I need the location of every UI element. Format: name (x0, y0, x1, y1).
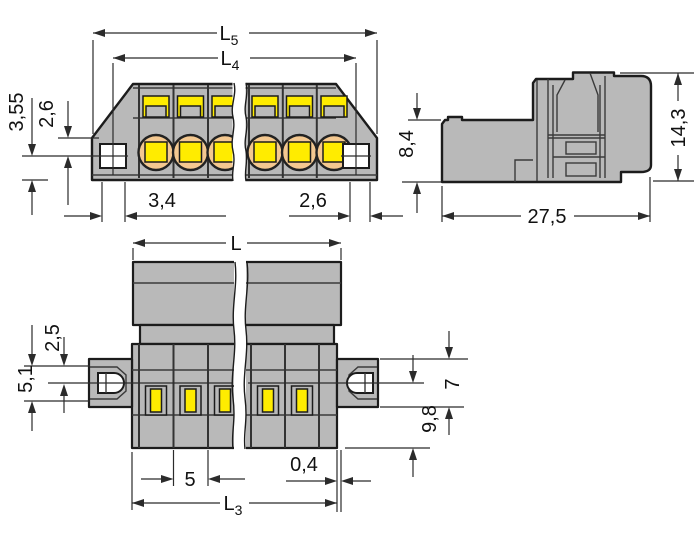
dim-label-3-55: 3,55 (6, 93, 28, 132)
technical-drawing-page: L5 L4 3,55 2,6 3,4 (0, 0, 697, 543)
dim-label-7: 7 (442, 378, 464, 389)
dim-label-14-3: 14,3 (668, 109, 690, 148)
dim-label-5: 5 (184, 469, 195, 491)
dim-label-9-8: 9,8 (419, 405, 441, 433)
dim-label-0-4: 0,4 (290, 454, 318, 476)
dim-label-2-5: 2,5 (42, 324, 64, 352)
connector-dimension-drawing: L5 L4 3,55 2,6 3,4 (0, 0, 697, 543)
dim-label-8-4: 8,4 (396, 130, 418, 158)
dim-label-3-4: 3,4 (148, 190, 176, 212)
dim-label-27-5: 27,5 (528, 206, 567, 228)
dim-label-5-1: 5,1 (15, 365, 37, 393)
dim-label-2-6-left: 2,6 (36, 100, 58, 128)
dim-label-l: L (230, 233, 241, 255)
dim-label-2-6-bottom: 2,6 (299, 190, 327, 212)
